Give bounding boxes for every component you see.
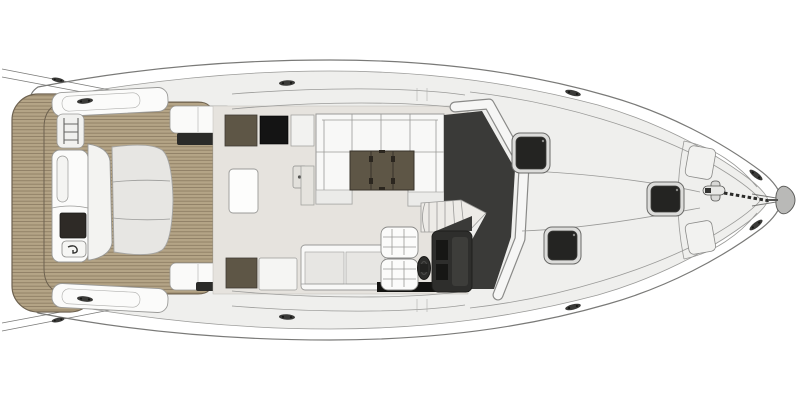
wet-bar-module <box>225 115 257 146</box>
steering-wheel-icon <box>418 257 431 280</box>
helm-screen <box>436 240 448 260</box>
deck-hatch <box>544 227 581 264</box>
sofa-side-panel <box>301 166 314 205</box>
seat-module <box>259 258 297 290</box>
seat-back <box>88 144 112 260</box>
helm-seat <box>381 227 418 258</box>
dinette-table <box>350 150 414 190</box>
anchor-locker-lid <box>684 220 716 255</box>
panel-dot-icon <box>298 175 301 178</box>
counter-module <box>291 115 314 146</box>
helm-console <box>432 231 472 292</box>
seat-cushions <box>112 145 173 254</box>
anchor-locker-lid <box>684 145 716 180</box>
anchor <box>776 186 795 214</box>
swim-ladder-icon <box>57 114 84 148</box>
helm-seat <box>381 259 418 290</box>
entry-threshold-dark <box>177 133 219 145</box>
bench-seat <box>301 245 388 290</box>
deck-hatch <box>647 182 684 216</box>
helm-screen <box>436 264 448 280</box>
shore-power-box <box>62 241 86 257</box>
transom-hatch <box>60 213 86 238</box>
coffee-table <box>229 169 258 213</box>
storage-module <box>226 258 257 288</box>
yacht-deck-plan <box>0 0 800 400</box>
grill-module <box>260 116 288 144</box>
deck-hatch <box>512 133 550 173</box>
